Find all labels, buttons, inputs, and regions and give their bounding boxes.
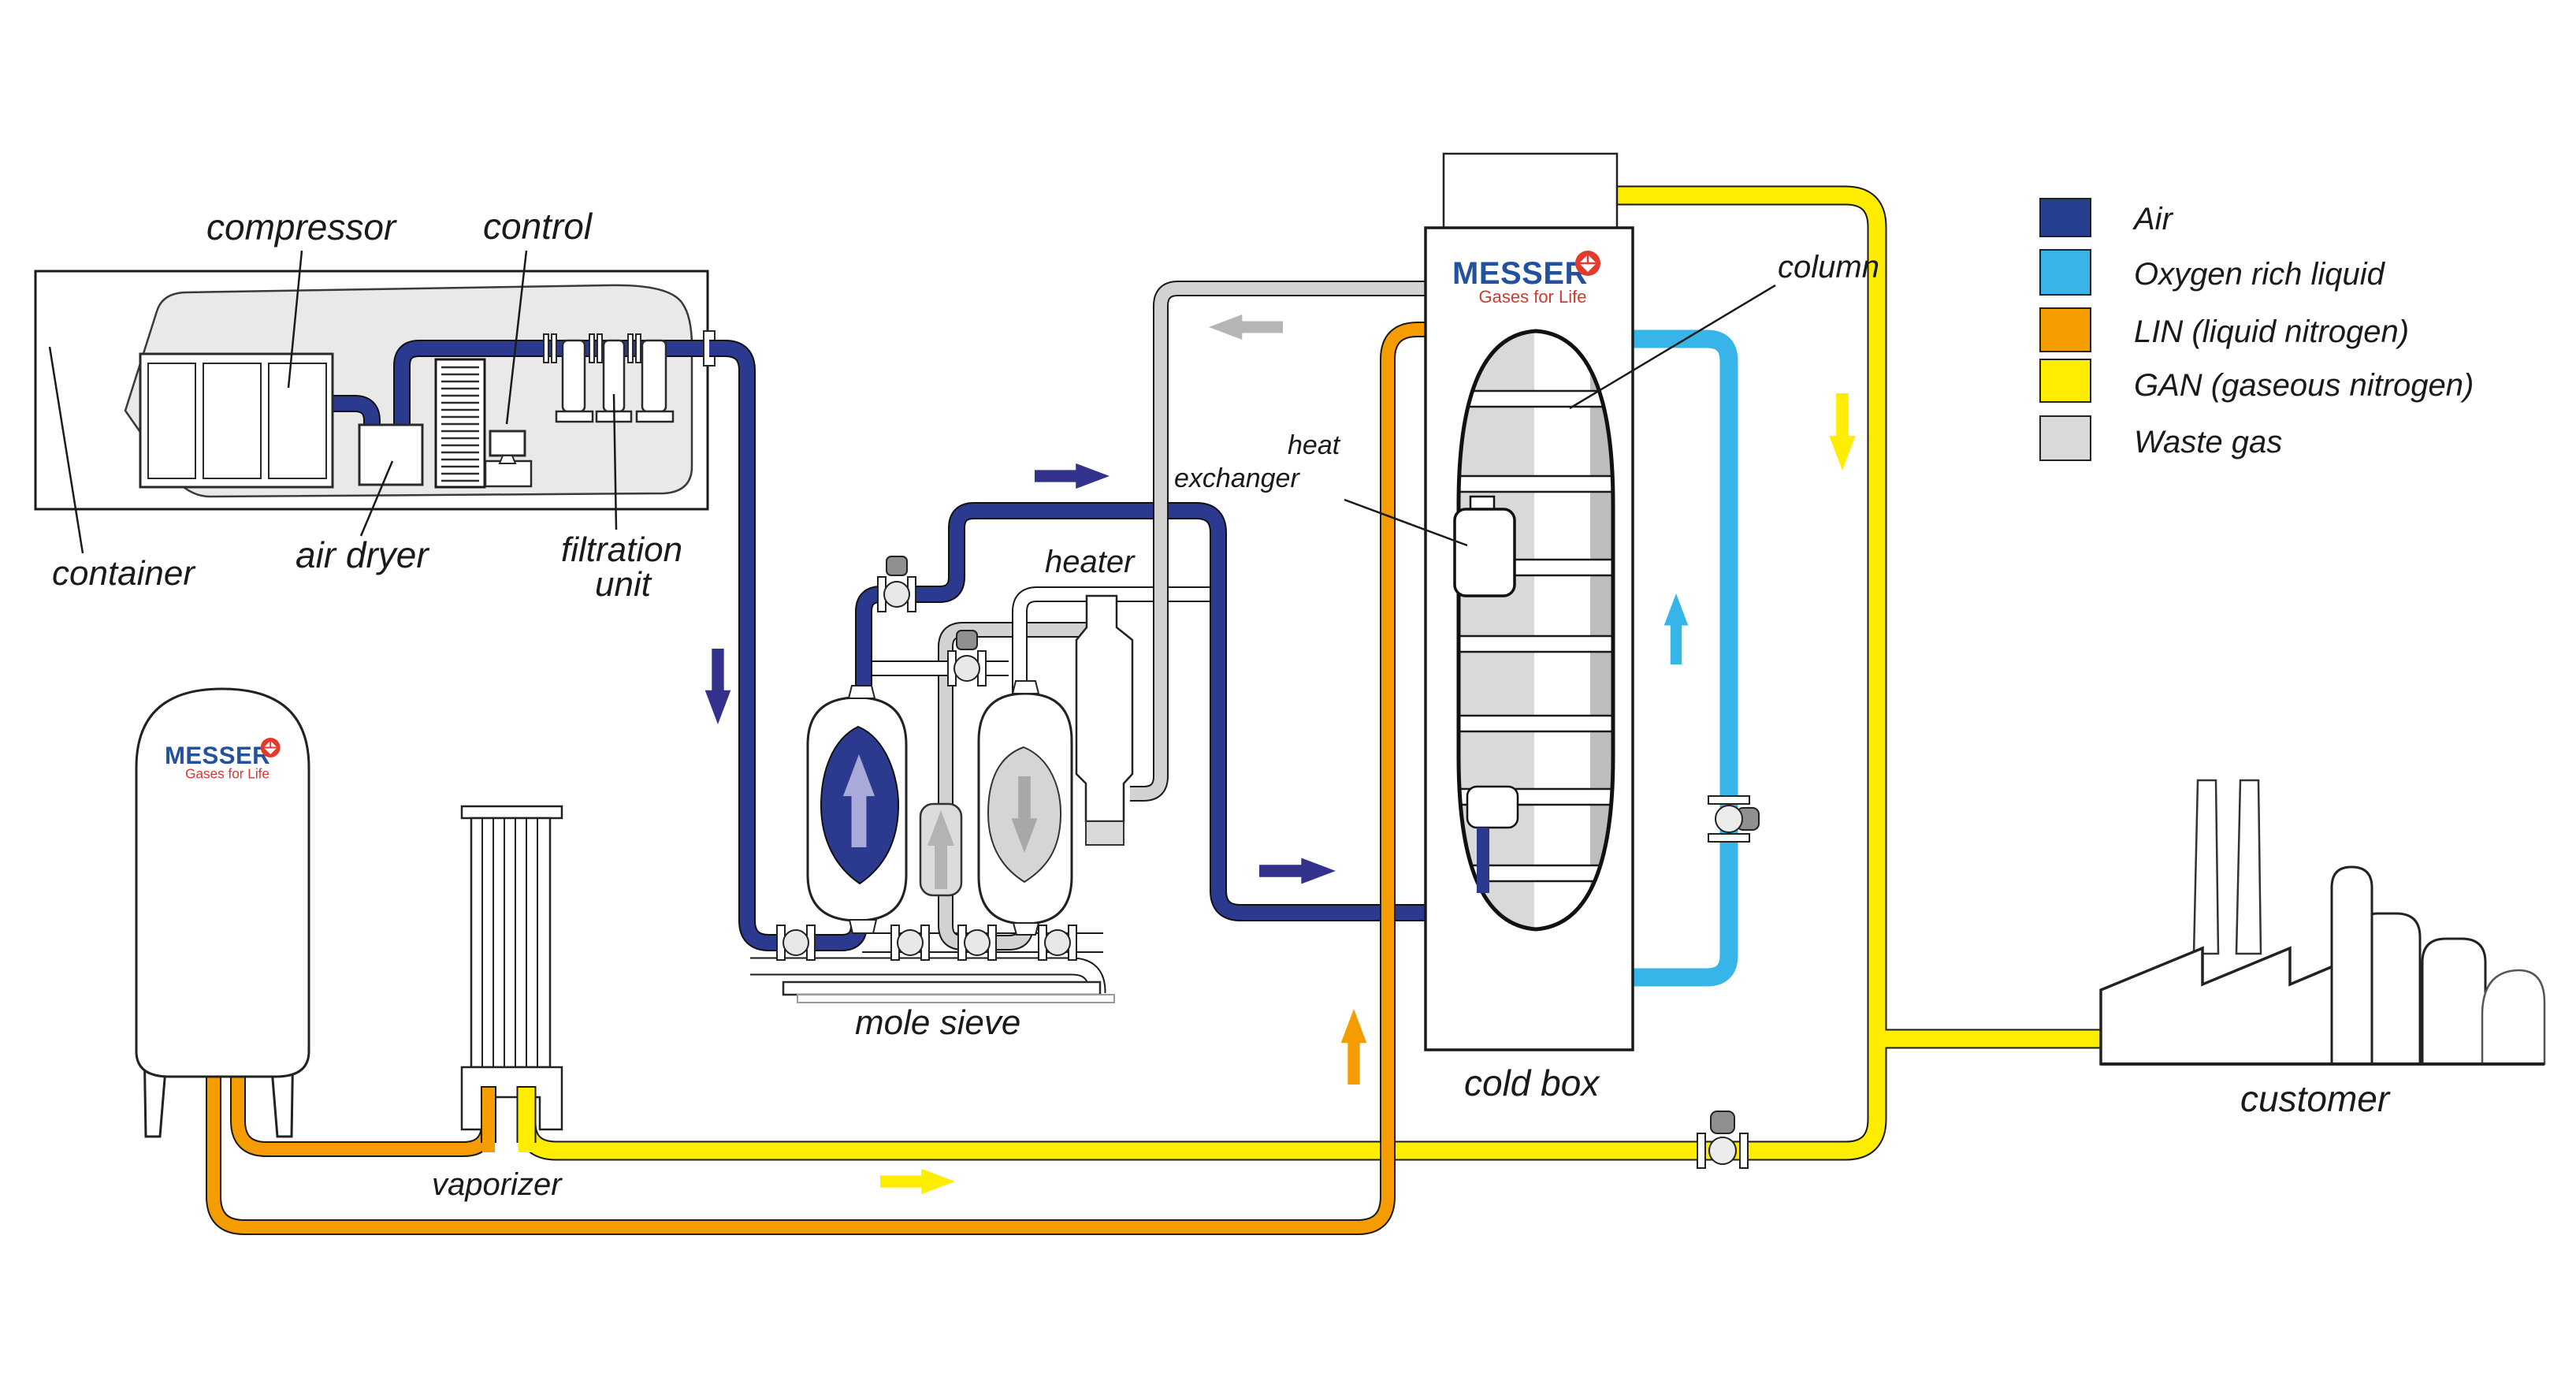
svg-text:compressor: compressor (206, 207, 397, 247)
svg-text:exchanger: exchanger (1174, 463, 1300, 493)
svg-text:heat: heat (1288, 430, 1341, 460)
svg-text:unit: unit (595, 565, 652, 604)
svg-text:column: column (1778, 250, 1879, 285)
svg-text:Air: Air (2132, 202, 2174, 236)
svg-text:customer: customer (2240, 1078, 2391, 1119)
svg-text:air dryer: air dryer (296, 534, 429, 575)
svg-text:Waste gas: Waste gas (2134, 425, 2282, 460)
svg-text:vaporizer: vaporizer (432, 1167, 563, 1202)
svg-text:LIN (liquid nitrogen): LIN (liquid nitrogen) (2134, 314, 2409, 349)
svg-text:control: control (483, 206, 593, 247)
svg-text:heater: heater (1045, 545, 1136, 579)
svg-text:GAN (gaseous nitrogen): GAN (gaseous nitrogen) (2134, 368, 2474, 403)
svg-text:filtration: filtration (561, 530, 682, 569)
svg-text:cold box: cold box (1464, 1062, 1600, 1103)
svg-text:Oxygen rich liquid: Oxygen rich liquid (2134, 257, 2386, 292)
svg-text:mole sieve: mole sieve (855, 1003, 1020, 1042)
svg-text:container: container (52, 554, 196, 593)
